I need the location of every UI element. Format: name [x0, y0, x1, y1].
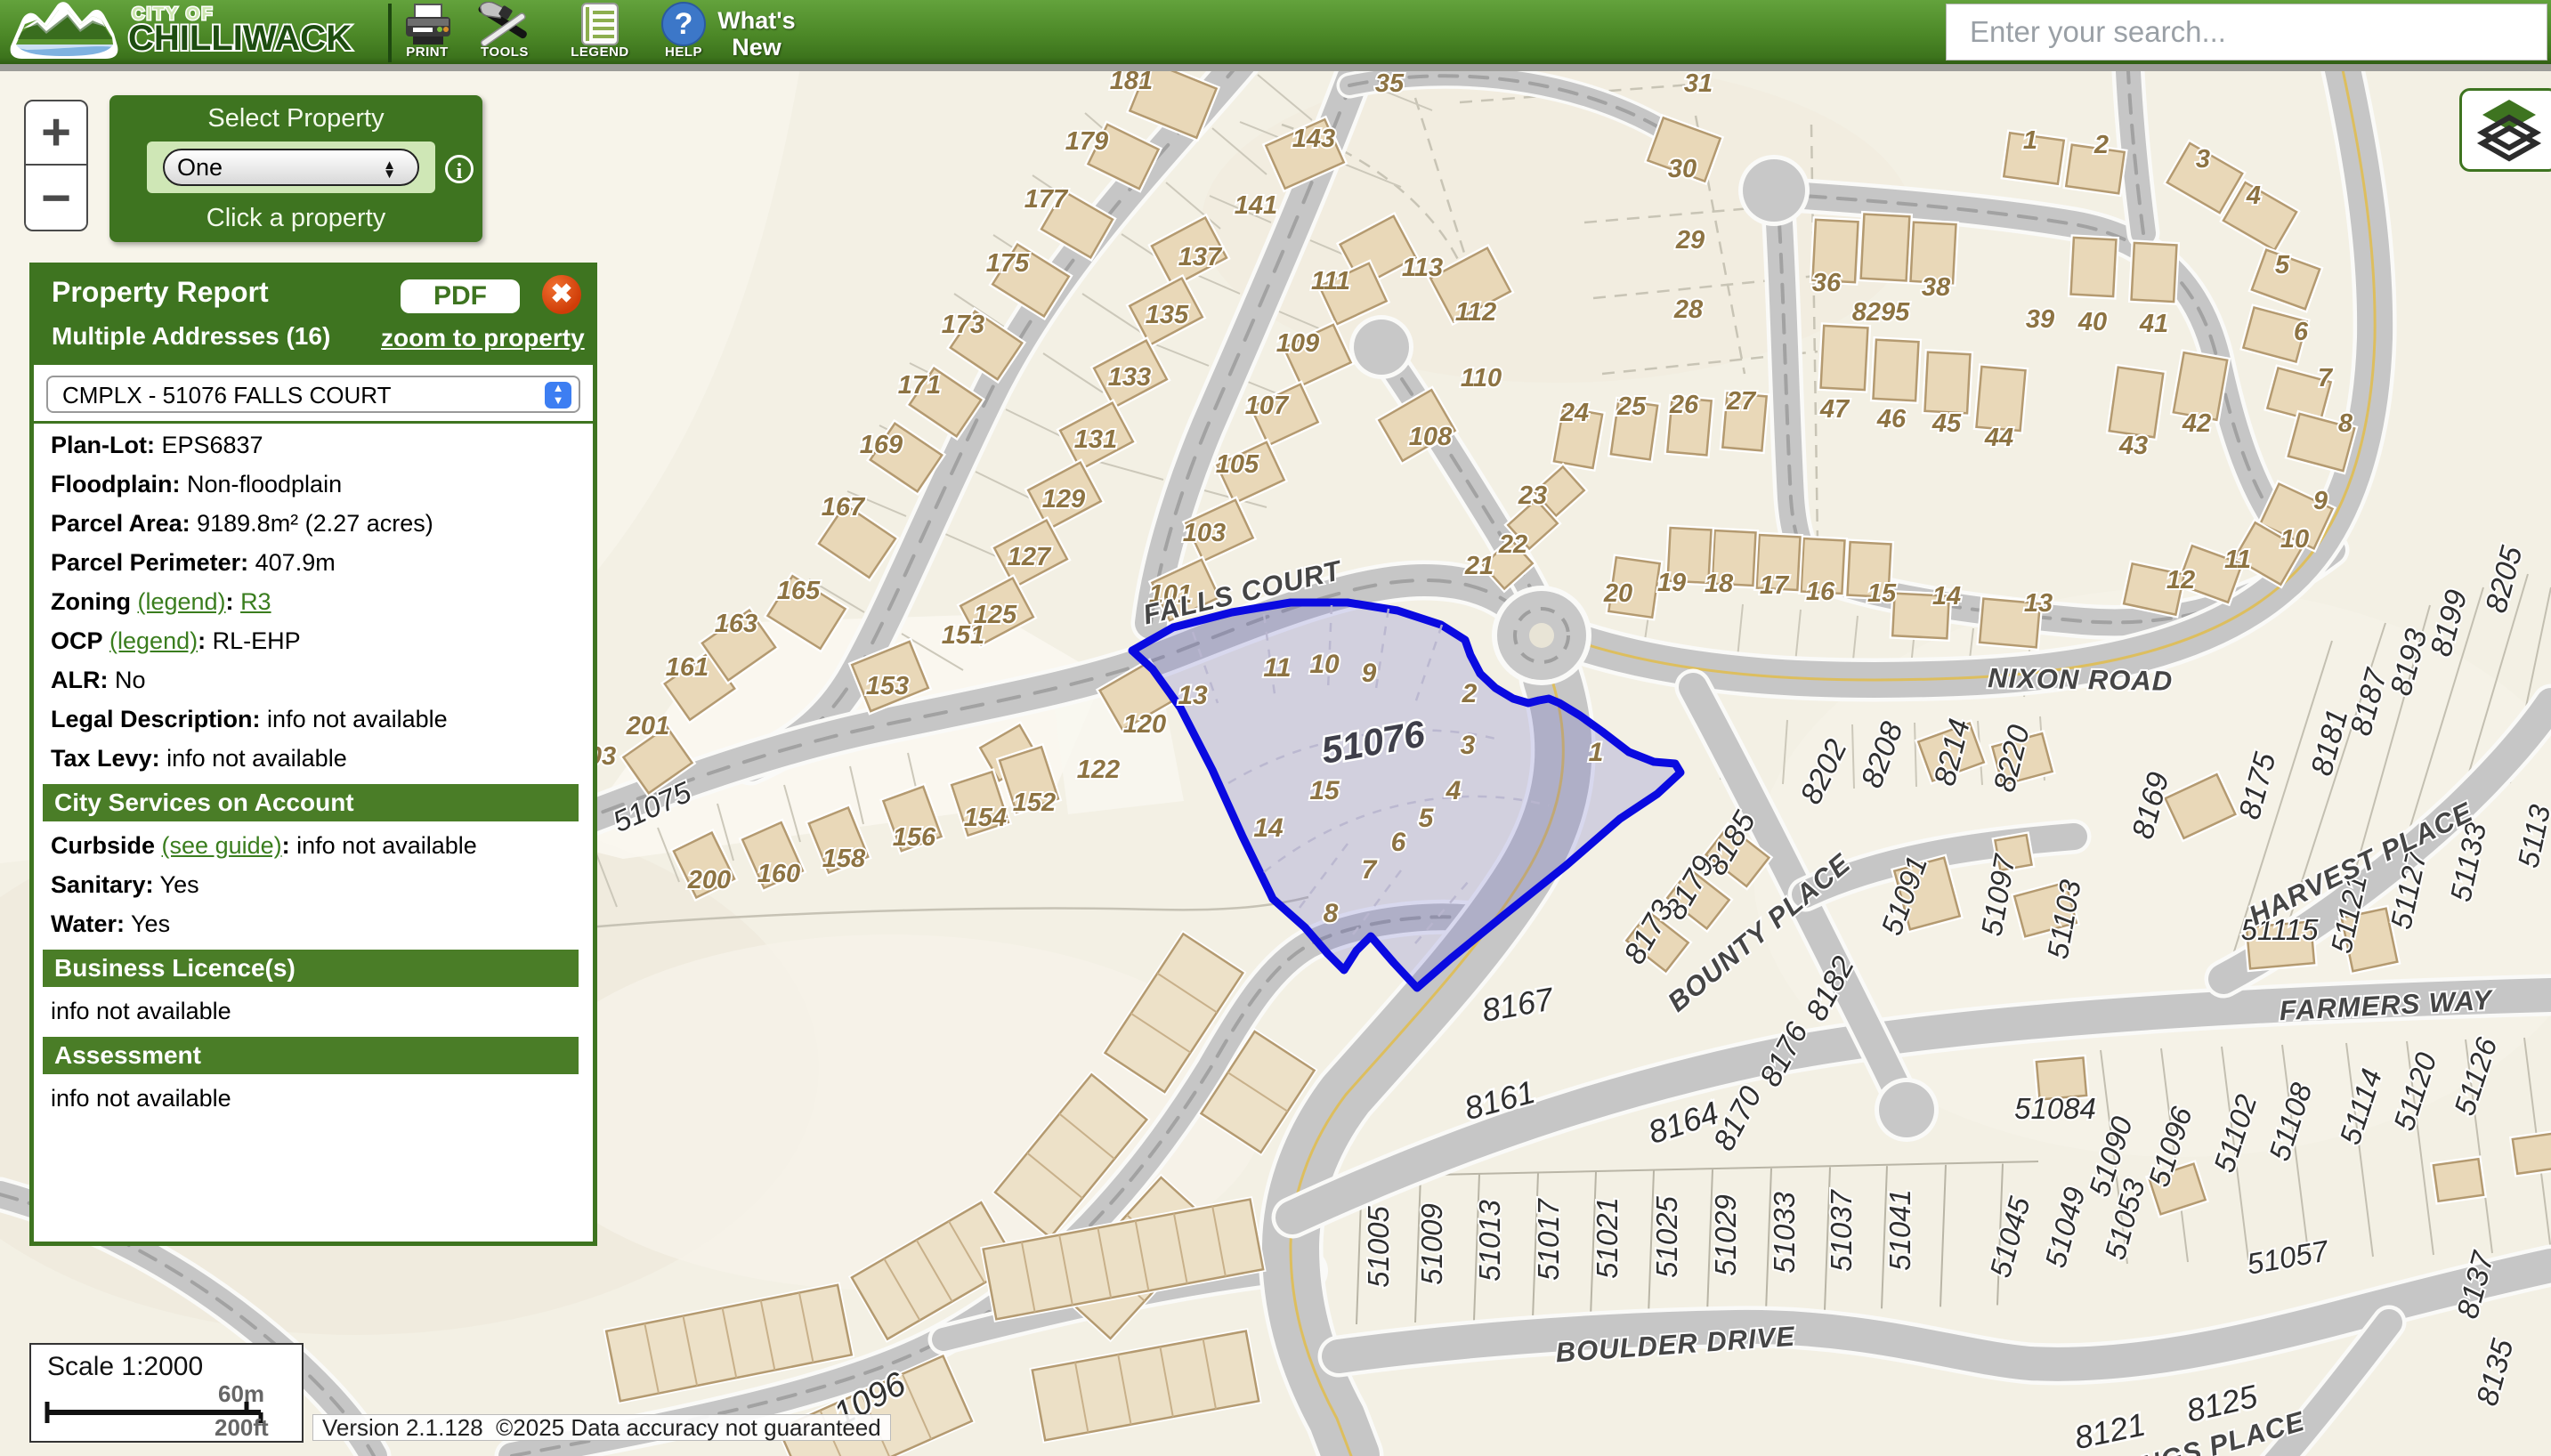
- svg-text:22: 22: [1498, 530, 1527, 559]
- svg-text:46: 46: [1876, 405, 1907, 433]
- svg-text:154: 154: [964, 804, 1007, 832]
- svg-text:2: 2: [1462, 679, 1478, 708]
- svg-text:161: 161: [666, 653, 709, 682]
- svg-text:16: 16: [1806, 578, 1835, 606]
- svg-text:12: 12: [2166, 566, 2195, 595]
- svg-text:165: 165: [777, 577, 821, 605]
- svg-text:5: 5: [1419, 804, 1435, 833]
- svg-text:160: 160: [757, 860, 800, 888]
- svg-text:51084: 51084: [2014, 1092, 2096, 1125]
- svg-text:11: 11: [1263, 653, 1291, 683]
- svg-text:CHILLIWACK: CHILLIWACK: [128, 19, 352, 58]
- svg-text:133: 133: [1108, 363, 1151, 392]
- svg-text:201: 201: [626, 712, 669, 740]
- svg-text:141: 141: [1235, 191, 1277, 220]
- svg-text:13: 13: [2024, 589, 2053, 618]
- svg-text:9: 9: [1362, 659, 1377, 688]
- svg-text:5: 5: [2275, 251, 2290, 279]
- svg-text:6: 6: [2294, 318, 2309, 346]
- svg-text:8: 8: [2338, 409, 2353, 438]
- svg-text:3: 3: [1461, 731, 1476, 760]
- svg-text:107: 107: [1245, 392, 1290, 420]
- svg-text:135: 135: [1146, 301, 1189, 329]
- svg-text:127: 127: [1008, 543, 1052, 571]
- svg-text:51021: 51021: [1591, 1197, 1624, 1279]
- svg-text:45: 45: [1931, 409, 1962, 438]
- svg-text:20: 20: [1603, 579, 1632, 608]
- svg-text:11: 11: [2224, 546, 2251, 574]
- svg-text:7: 7: [1362, 855, 1378, 885]
- svg-text:169: 169: [860, 431, 903, 459]
- svg-text:51013: 51013: [1473, 1199, 1506, 1281]
- svg-text:23: 23: [1518, 481, 1547, 510]
- svg-text:173: 173: [942, 311, 984, 339]
- svg-text:109: 109: [1276, 329, 1319, 358]
- svg-text:110: 110: [1461, 364, 1502, 392]
- svg-text:108: 108: [1409, 423, 1453, 451]
- svg-text:51005: 51005: [1362, 1205, 1395, 1287]
- svg-text:137: 137: [1178, 243, 1223, 271]
- svg-text:2: 2: [2093, 131, 2109, 159]
- svg-text:122: 122: [1077, 756, 1120, 784]
- svg-text:14: 14: [1932, 582, 1961, 611]
- svg-text:6: 6: [1391, 828, 1406, 857]
- svg-text:31: 31: [1684, 69, 1713, 98]
- svg-text:120: 120: [1123, 710, 1166, 739]
- svg-text:14: 14: [1253, 813, 1284, 843]
- svg-text:51017: 51017: [1532, 1197, 1565, 1280]
- svg-text:40: 40: [2077, 308, 2107, 336]
- svg-text:35: 35: [1375, 69, 1405, 98]
- svg-text:4: 4: [2246, 182, 2261, 210]
- svg-text:9: 9: [2313, 487, 2328, 515]
- svg-text:175: 175: [986, 249, 1030, 278]
- svg-text:1: 1: [2023, 126, 2037, 155]
- svg-text:177: 177: [1024, 185, 1069, 214]
- svg-text:15: 15: [1309, 776, 1340, 805]
- svg-text:NIXON ROAD: NIXON ROAD: [1988, 662, 2174, 697]
- svg-text:51025: 51025: [1650, 1195, 1683, 1277]
- svg-text:8295: 8295: [1852, 298, 1910, 327]
- svg-text:143: 143: [1292, 125, 1335, 153]
- svg-text:36: 36: [1812, 269, 1842, 297]
- svg-text:25: 25: [1616, 392, 1647, 421]
- svg-text:28: 28: [1673, 295, 1704, 324]
- svg-text:18: 18: [1705, 570, 1734, 598]
- svg-text:171: 171: [898, 371, 941, 400]
- svg-text:129: 129: [1042, 485, 1085, 514]
- svg-text:105: 105: [1216, 450, 1259, 479]
- svg-text:38: 38: [1922, 273, 1951, 302]
- svg-text:4: 4: [1446, 776, 1462, 805]
- svg-text:29: 29: [1675, 226, 1705, 255]
- svg-text:41: 41: [2139, 310, 2168, 338]
- svg-text:13: 13: [1178, 681, 1208, 710]
- svg-text:27: 27: [1726, 387, 1757, 416]
- svg-text:15: 15: [1867, 579, 1897, 608]
- svg-text:10: 10: [1309, 650, 1340, 679]
- svg-text:51009: 51009: [1415, 1203, 1448, 1285]
- svg-text:30: 30: [1668, 155, 1697, 183]
- svg-text:42: 42: [2182, 409, 2211, 438]
- svg-text:167: 167: [822, 493, 866, 522]
- svg-text:151: 151: [942, 621, 984, 650]
- svg-text:113: 113: [1402, 254, 1443, 282]
- svg-text:156: 156: [893, 823, 936, 852]
- svg-text:39: 39: [2026, 305, 2054, 334]
- svg-text:51029: 51029: [1709, 1194, 1742, 1276]
- svg-text:112: 112: [1455, 298, 1496, 327]
- svg-text:?: ?: [675, 7, 693, 41]
- svg-text:51033: 51033: [1768, 1191, 1801, 1273]
- svg-text:158: 158: [822, 845, 866, 873]
- svg-text:131: 131: [1074, 425, 1117, 454]
- svg-text:179: 179: [1065, 127, 1108, 156]
- svg-text:44: 44: [1984, 424, 2013, 452]
- svg-text:3: 3: [2196, 145, 2210, 174]
- svg-text:1: 1: [1589, 738, 1604, 767]
- svg-text:21: 21: [1464, 552, 1494, 580]
- svg-text:24: 24: [1559, 399, 1589, 427]
- svg-text:51041: 51041: [1883, 1189, 1916, 1271]
- svg-text:7: 7: [2318, 364, 2334, 392]
- svg-text:103: 103: [1183, 519, 1226, 547]
- svg-text:19: 19: [1657, 569, 1686, 597]
- svg-text:47: 47: [1819, 395, 1850, 424]
- svg-text:10: 10: [2280, 525, 2309, 554]
- svg-text:152: 152: [1013, 789, 1056, 817]
- svg-text:153: 153: [866, 672, 909, 700]
- svg-text:26: 26: [1669, 391, 1699, 419]
- svg-text:43: 43: [2118, 432, 2148, 460]
- svg-text:8: 8: [1324, 899, 1339, 928]
- svg-text:163: 163: [715, 610, 757, 638]
- svg-text:51037: 51037: [1825, 1188, 1858, 1271]
- svg-text:17: 17: [1760, 571, 1790, 600]
- svg-text:200: 200: [687, 866, 731, 894]
- svg-text:111: 111: [1311, 267, 1350, 295]
